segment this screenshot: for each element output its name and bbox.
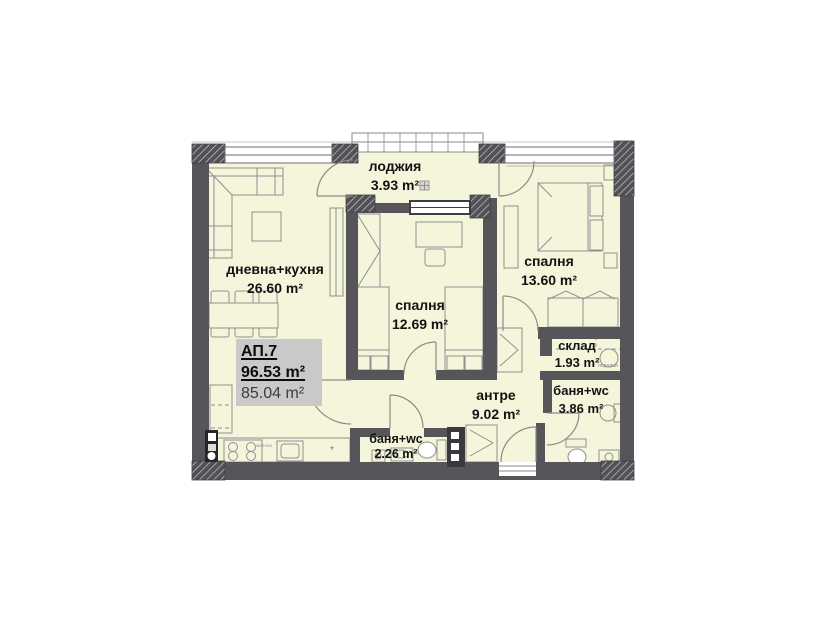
- kitchen-cabinet: [210, 385, 232, 433]
- room-label-bedroom-1: спалня 12.69 m²: [392, 296, 448, 334]
- room-area: 2.26 m²: [369, 447, 423, 462]
- column-loggia-right: [479, 144, 505, 163]
- bedroom1-wardrobe: [357, 214, 380, 288]
- room-area: 9.02 m²: [472, 405, 520, 424]
- room-name: дневна+кухня: [226, 261, 324, 277]
- wall-storage-left: [540, 339, 552, 356]
- wall-left: [192, 144, 209, 480]
- room-name: антре: [476, 387, 515, 403]
- bedroom1-bed-right: [445, 287, 483, 378]
- wall-bedroom1-bottom-left: [346, 370, 404, 380]
- room-area: 12.69 m²: [392, 315, 448, 334]
- wall-living-bedroom1: [346, 212, 358, 380]
- column-top-left: [192, 144, 225, 163]
- apartment-id: АП.7: [241, 341, 317, 362]
- room-area: 1.93 m²: [555, 354, 600, 371]
- hallway-wardrobe-lower: [466, 425, 497, 462]
- room-area: 3.93 m²: [369, 176, 422, 195]
- bedroom2-desk: [504, 206, 518, 268]
- entrance-opening: [499, 462, 536, 476]
- room-label-living-kitchen: дневна+кухня 26.60 m²: [226, 260, 324, 298]
- installation-shaft: [447, 427, 465, 467]
- kitchen-shaft: [205, 430, 218, 462]
- apartment-total-area: 96.53 m²: [241, 362, 317, 383]
- wall-bottom: [192, 462, 634, 480]
- room-name: баня+wc: [369, 432, 423, 446]
- wall-bedroom1-bottom-right: [436, 370, 483, 380]
- loggia-area-icon: [420, 181, 429, 190]
- column-loggia-left: [332, 144, 358, 163]
- washing-machine-label: пералня: [598, 363, 617, 369]
- room-name: спалня: [395, 297, 445, 313]
- dining-table: [209, 303, 278, 328]
- room-label-storage: склад 1.93 m²: [555, 337, 600, 371]
- room-label-bathroom-small: баня+wc 2.26 m²: [369, 432, 423, 462]
- room-name: лоджия: [369, 158, 422, 174]
- room-name: баня+wc: [553, 383, 609, 398]
- room-area: 13.60 m²: [521, 271, 577, 290]
- loggia-window: [352, 133, 483, 152]
- column-top-right: [614, 141, 634, 196]
- room-label-bedroom-2: спалня 13.60 m²: [521, 252, 577, 290]
- room-label-hallway: антре 9.02 m²: [472, 386, 520, 424]
- room-area: 26.60 m²: [226, 279, 324, 298]
- wall-storage-bottom: [540, 371, 634, 380]
- bedroom2-bed: [538, 183, 603, 251]
- bedroom1-window: [410, 201, 470, 214]
- nightstand-bottom: [604, 253, 617, 268]
- wall-bathroom-big-left: [543, 380, 552, 413]
- living-window: [225, 147, 332, 163]
- room-label-bathroom-big: баня+wc 3.86 m²: [553, 382, 609, 418]
- room-name: склад: [558, 338, 596, 353]
- wall-bedroom1-right: [483, 198, 497, 380]
- bedroom2-window: [505, 147, 614, 163]
- wall-bathroom-small-top-right: [424, 428, 447, 437]
- apartment-info-box: АП.7 96.53 m² 85.04 m²: [236, 339, 322, 406]
- room-label-loggia: лоджия 3.93 m²: [369, 157, 422, 195]
- room-name: спалня: [524, 253, 574, 269]
- kitchen-unit-label: миялна: [256, 443, 272, 448]
- column-bedroom1-topright: [470, 195, 490, 218]
- room-area: 3.86 m²: [553, 400, 609, 418]
- wall-bathroom-small-left: [350, 428, 360, 462]
- column-bottom-left: [192, 461, 225, 480]
- column-bedroom1-topleft: [346, 195, 375, 212]
- column-bottom-right: [601, 461, 634, 480]
- tv-stand: [330, 208, 343, 296]
- floor-plan: лоджия 3.93 m² дневна+кухня 26.60 m² спа…: [0, 0, 825, 619]
- wall-entry-jamb: [536, 423, 545, 462]
- kitchen-sink: [277, 441, 303, 461]
- hallway-wardrobe-upper: [497, 328, 522, 372]
- apartment-net-area: 85.04 m²: [241, 383, 317, 404]
- coffee-table: [252, 212, 281, 241]
- kitchen-mark: *: [330, 445, 334, 456]
